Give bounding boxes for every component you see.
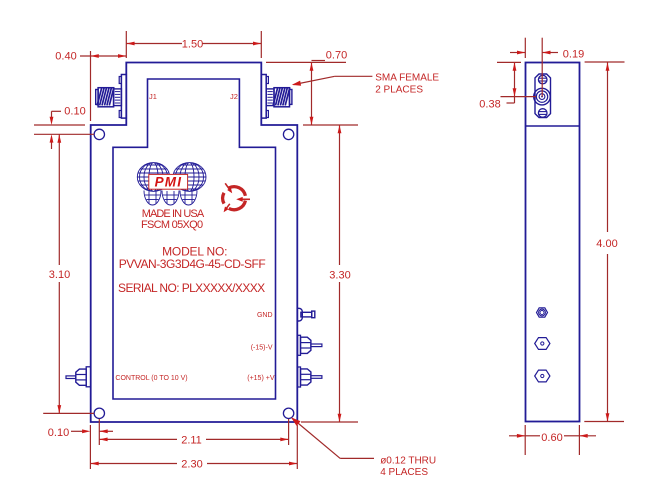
svg-text:1.50: 1.50 — [182, 39, 203, 51]
svg-text:(-15)-V: (-15)-V — [251, 345, 273, 352]
svg-text:CONTROL (0 TO 10 V): CONTROL (0 TO 10 V) — [115, 375, 187, 382]
svg-text:0.38: 0.38 — [479, 99, 500, 111]
svg-text:J1: J1 — [149, 92, 157, 101]
svg-text:0.70: 0.70 — [326, 49, 347, 61]
svg-text:ø0.12 THRU: ø0.12 THRU — [380, 456, 436, 467]
svg-text:PVVAN-3G3D4G-45-CD-SFF: PVVAN-3G3D4G-45-CD-SFF — [119, 257, 266, 271]
svg-text:FSCM 05XQ0: FSCM 05XQ0 — [141, 219, 203, 231]
svg-text:J2: J2 — [230, 92, 238, 101]
svg-text:4 PLACES: 4 PLACES — [380, 467, 428, 478]
svg-text:(+15) +V: (+15) +V — [247, 375, 275, 382]
svg-text:PMI: PMI — [155, 174, 183, 189]
svg-text:0.60: 0.60 — [541, 432, 562, 444]
svg-text:2.11: 2.11 — [181, 434, 202, 446]
svg-text:0.40: 0.40 — [55, 51, 76, 63]
svg-text:GND: GND — [257, 312, 273, 319]
svg-text:0.19: 0.19 — [563, 49, 584, 61]
svg-text:0.10: 0.10 — [48, 427, 69, 439]
svg-text:0.10: 0.10 — [64, 106, 85, 118]
svg-text:2.30: 2.30 — [181, 458, 202, 470]
svg-text:3.30: 3.30 — [329, 269, 350, 281]
svg-text:2 PLACES: 2 PLACES — [375, 84, 423, 95]
svg-text:SERIAL NO: PLXXXXX/XXXX: SERIAL NO: PLXXXXX/XXXX — [118, 281, 265, 295]
svg-text:4.00: 4.00 — [596, 238, 617, 250]
svg-text:SMA FEMALE: SMA FEMALE — [375, 73, 439, 84]
svg-text:3.10: 3.10 — [49, 269, 70, 281]
